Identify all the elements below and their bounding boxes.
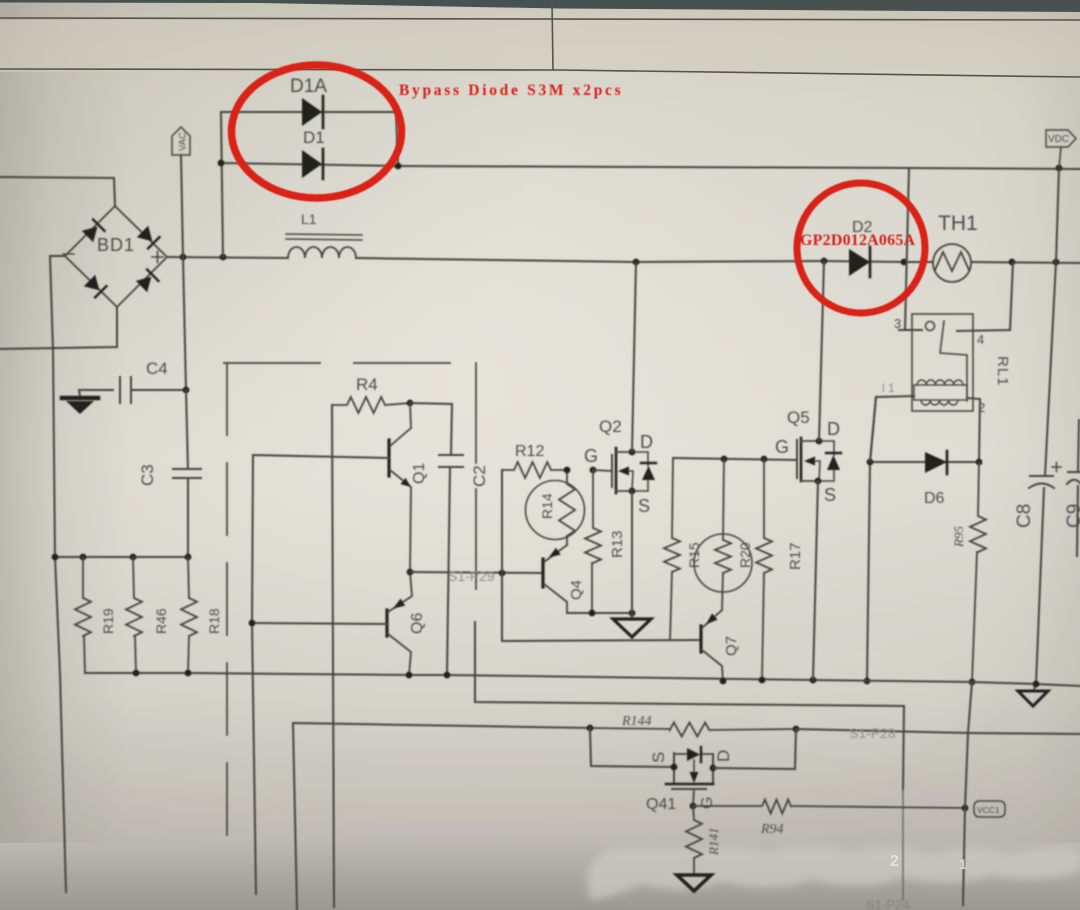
svg-text:R17: R17 (787, 542, 804, 570)
svg-text:C3: C3 (138, 464, 157, 486)
svg-text:VAC: VAC (178, 132, 189, 151)
svg-text:R4: R4 (356, 375, 378, 394)
svg-text:S: S (649, 752, 668, 763)
svg-text:C9: C9 (1064, 504, 1080, 528)
svg-text:VDC: VDC (1048, 134, 1069, 145)
svg-text:Q6: Q6 (409, 613, 426, 634)
svg-text:D6: D6 (924, 490, 945, 507)
svg-text:G: G (699, 797, 716, 809)
svg-text:S1-P24: S1-P24 (866, 897, 909, 910)
svg-text:R144: R144 (621, 714, 652, 729)
svg-text:D: D (827, 419, 840, 439)
svg-text:RL1: RL1 (994, 356, 1011, 387)
svg-text:G: G (584, 446, 598, 466)
svg-text:R95: R95 (951, 526, 966, 548)
svg-text:R46: R46 (153, 608, 169, 634)
svg-text:1: 1 (959, 856, 967, 872)
svg-text:2: 2 (890, 853, 899, 870)
svg-text:R14: R14 (539, 493, 555, 519)
svg-text:G: G (775, 437, 789, 457)
svg-text:D1: D1 (303, 128, 325, 147)
svg-text:R94: R94 (760, 822, 784, 837)
svg-text:Q4: Q4 (568, 580, 585, 600)
svg-text:BD1: BD1 (97, 235, 135, 255)
svg-text:S: S (638, 496, 650, 516)
svg-text:D: D (714, 750, 733, 762)
svg-text:Q2: Q2 (599, 417, 622, 436)
svg-text:R12: R12 (515, 443, 544, 460)
svg-text:C4: C4 (146, 359, 168, 378)
svg-text:R13: R13 (609, 530, 626, 558)
svg-text:C8: C8 (1014, 504, 1035, 528)
svg-text:D1A: D1A (290, 76, 327, 97)
svg-text:l 1: l 1 (882, 381, 895, 395)
svg-text:S1-P28: S1-P28 (849, 725, 896, 741)
svg-text:4: 4 (977, 332, 984, 347)
svg-text:L1: L1 (301, 211, 317, 227)
svg-text:D: D (640, 432, 653, 452)
svg-text:Q41: Q41 (646, 796, 676, 813)
svg-text:R141: R141 (706, 828, 721, 856)
svg-text:S: S (824, 485, 836, 505)
svg-text:Q7: Q7 (723, 636, 740, 656)
svg-text:GP2D012A065A: GP2D012A065A (800, 232, 916, 249)
svg-text:R18: R18 (206, 608, 222, 634)
svg-text:Q5: Q5 (787, 408, 810, 427)
svg-text:Q1: Q1 (411, 463, 428, 484)
svg-text:R20: R20 (737, 542, 753, 568)
svg-text:TH1: TH1 (938, 212, 978, 235)
svg-text:VCC1: VCC1 (977, 805, 1000, 815)
svg-text:R19: R19 (100, 608, 116, 634)
svg-text:S1-P29: S1-P29 (448, 568, 495, 584)
svg-text:C2: C2 (470, 465, 489, 487)
svg-text:3: 3 (894, 316, 901, 331)
svg-text:Bypass Diode S3M x2pcs: Bypass Diode S3M x2pcs (399, 82, 623, 99)
